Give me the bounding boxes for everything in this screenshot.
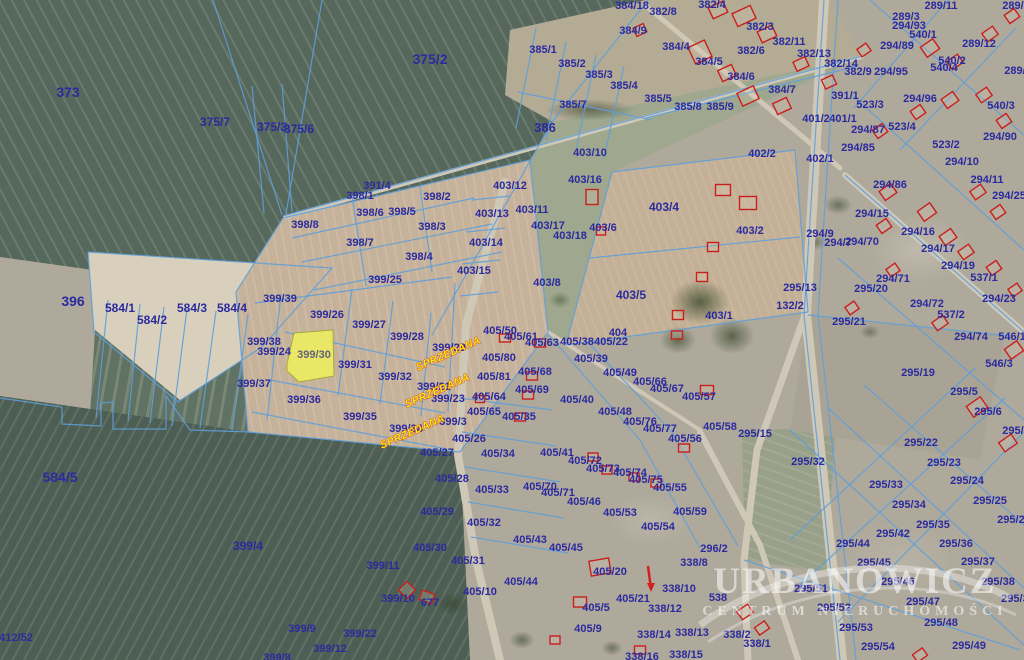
parcel-label: 405/35 — [502, 411, 536, 423]
parcel-label: 405/40 — [560, 394, 594, 406]
parcel-label: 399/27 — [352, 319, 386, 331]
parcel-label: 399/28 — [390, 331, 424, 343]
building-outline — [716, 185, 731, 196]
parcel-label: 294/96 — [903, 93, 937, 105]
parcel-label: 294/85 — [841, 142, 875, 154]
parcel-label: 405/22 — [594, 336, 628, 348]
parcel-label: 295/46 — [881, 576, 915, 588]
parcel-label: 294/25 — [992, 190, 1024, 202]
parcel-label: 403/1 — [705, 310, 733, 322]
parcel-label: 537/1 — [970, 272, 998, 284]
parcel-label: 399/24 — [257, 346, 292, 358]
parcel-label: 405/29 — [420, 506, 454, 518]
parcel-label: 375/2 — [412, 51, 447, 67]
parcel-label: 405/58 — [703, 421, 737, 433]
parcel-label: 294/87 — [851, 124, 885, 136]
parcel-boundary — [590, 237, 800, 258]
building-outline — [920, 39, 939, 57]
building-outline — [917, 203, 936, 221]
building-outline — [910, 104, 926, 119]
parcel-boundary — [516, 28, 536, 128]
parcel-label: 338/15 — [669, 649, 703, 660]
parcel-label: 384/5 — [695, 56, 723, 68]
building-outline — [1004, 341, 1023, 359]
parcel-label: 399/9 — [288, 623, 316, 635]
building-outline — [990, 204, 1006, 219]
parcel-label: 391/1 — [831, 90, 859, 102]
parcel-boundary — [380, 301, 393, 404]
parcel-label: 399/35 — [343, 411, 377, 423]
parcel-label: 384/9 — [619, 25, 647, 37]
parcel-overlay: 373375/7375/3375/6375/2396584/1584/2584/… — [0, 0, 1024, 660]
parcel-label: 405/53 — [603, 507, 637, 519]
parcel-label: 382/3 — [746, 21, 774, 33]
building-outline — [755, 621, 770, 635]
parcel-boundary — [744, 560, 1020, 650]
parcel-label: 295/49 — [952, 640, 986, 652]
parcel-label: 294/15 — [855, 208, 889, 220]
parcel-label: 132/2 — [776, 300, 804, 312]
parcel-label: 398/7 — [346, 237, 374, 249]
parcel-label: 403/12 — [493, 180, 527, 192]
parcel-label: 405/26 — [452, 433, 486, 445]
parcel-label: 399/11 — [366, 560, 399, 572]
parcel-label: 405/46 — [567, 496, 601, 508]
parcel-boundary — [468, 502, 564, 518]
parcel-label: 295/39 — [1001, 593, 1024, 605]
parcel-label: 373 — [56, 84, 80, 100]
parcel-label: 294/90 — [983, 131, 1017, 143]
parcel-label: 405/55 — [653, 482, 687, 494]
parcel-label: 584/1 — [105, 301, 135, 315]
parcel-label: 523/2 — [932, 139, 960, 151]
parcel-label: 398/3 — [418, 221, 446, 233]
parcel-label: 401/2 — [802, 113, 830, 125]
parcel-boundary — [0, 396, 250, 432]
building-outline — [876, 218, 892, 233]
parcel-label: 385/5 — [644, 93, 672, 105]
parcel-label: 405/45 — [549, 542, 583, 554]
parcel-label: 295/20 — [854, 283, 888, 295]
parcel-boundary — [338, 289, 352, 396]
parcel-label: 338/16 — [625, 651, 659, 660]
parcel-label: 405/64 — [472, 391, 507, 403]
parcel-label: 405/10 — [463, 586, 497, 598]
parcel-label: 584/4 — [217, 301, 247, 315]
parcel-label: 338/12 — [648, 603, 682, 615]
parcel-boundary — [530, 160, 548, 332]
parcel-label: 403/2 — [736, 225, 764, 237]
parcel-boundary — [88, 252, 332, 402]
parcel-label: 405/63 — [525, 337, 559, 349]
building-outline — [679, 444, 690, 452]
parcel-label: 398/8 — [291, 219, 319, 231]
building-outline — [672, 331, 683, 339]
parcel-boundary — [286, 0, 322, 214]
parcel-label: 295/13 — [783, 282, 817, 294]
parcel-label: 295/44 — [836, 538, 871, 550]
parcel-label: 405/38 — [560, 336, 594, 348]
parcel-label: 385/1 — [529, 44, 557, 56]
parcel-label: 405/43 — [513, 534, 547, 546]
road — [744, 315, 805, 660]
parcel-label: 399/8 — [263, 652, 291, 660]
parcel-label: 398/5 — [388, 206, 416, 218]
parcel-label: 398/1 — [346, 190, 374, 202]
parcel-label: 338/13 — [675, 627, 709, 639]
parcel-label: 399/37 — [237, 378, 271, 390]
parcel-boundary — [96, 300, 108, 418]
parcel-label: 295/33 — [869, 479, 903, 491]
parcel-label: 399/4 — [233, 539, 263, 553]
building-outline — [697, 273, 708, 282]
parcel-label: 584/5 — [42, 469, 77, 485]
parcel-label: 523/3 — [856, 99, 884, 111]
parcel-label: 382/9 — [844, 66, 872, 78]
parcel-label: 295/51 — [794, 583, 828, 595]
parcel-boundary — [460, 292, 498, 296]
parcel-label: 295/25 — [973, 495, 1007, 507]
parcel-label: 405/32 — [467, 517, 501, 529]
parcel-label: 338/1 — [743, 638, 771, 650]
parcel-label: 295/53 — [839, 622, 873, 634]
parcel-label: 295/48 — [924, 617, 958, 629]
parcel-label: 405/56 — [668, 433, 702, 445]
parcel-label: 402/1 — [806, 153, 834, 165]
parcel-label: 295/32 — [791, 456, 825, 468]
building-outline — [970, 184, 986, 200]
parcel-boundary — [236, 218, 283, 292]
parcel-label: 375/3 — [257, 120, 287, 134]
parcel-label: 403/10 — [573, 147, 607, 159]
road — [645, 5, 840, 168]
parcel-label: 584/3 — [177, 301, 207, 315]
parcel-label: 405/5 — [582, 602, 610, 614]
parcel-label: 294/95 — [874, 66, 908, 78]
parcel-label: 403/14 — [469, 237, 504, 249]
parcel-label: 382/6 — [737, 45, 765, 57]
parcel-label: 289/12 — [962, 38, 996, 50]
parcel-label: 398/6 — [356, 207, 384, 219]
red-arrow-head-icon — [647, 583, 655, 592]
parcel-label: 295/36 — [939, 538, 973, 550]
parcel-label: 399/30 — [297, 349, 331, 361]
parcel-label: 295/26 — [997, 514, 1024, 526]
parcel-label: 405/30 — [413, 542, 447, 554]
parcel-label: 405/54 — [641, 521, 676, 533]
parcel-boundary — [232, 314, 248, 431]
building-outline — [857, 43, 871, 57]
cadastral-map[interactable]: 373375/7375/3375/6375/2396584/1584/2584/… — [0, 0, 1024, 660]
parcel-label: 412/52 — [0, 632, 33, 644]
parcel-label: 385/9 — [706, 101, 734, 113]
building-outline — [740, 197, 757, 210]
building-outline — [913, 648, 928, 660]
parcel-label: 289/11 — [924, 0, 957, 12]
building-outline — [941, 91, 959, 108]
parcel-label: 295/21 — [832, 316, 866, 328]
parcel-label: 405/68 — [518, 366, 552, 378]
parcel-label: 546/1 — [998, 331, 1024, 343]
parcel-label: 405/39 — [574, 353, 608, 365]
parcel-label: 405/81 — [477, 371, 511, 383]
parcel-label: 677 — [421, 597, 439, 609]
parcel-label: 385/2 — [558, 58, 586, 70]
parcel-label: 385/4 — [610, 80, 638, 92]
parcel-label: 289/9 — [1002, 0, 1024, 12]
parcel-label: 294/17 — [921, 243, 955, 255]
parcel-label: 338/14 — [637, 629, 672, 641]
parcel-label: 405/20 — [593, 566, 627, 578]
parcel-label: 385/3 — [585, 69, 613, 81]
parcel-label: 403/16 — [568, 174, 602, 186]
parcel-label: 403/15 — [457, 265, 491, 277]
parcel-label: 294/16 — [901, 226, 935, 238]
parcel-label: 405/59 — [673, 506, 707, 518]
parcel-label: 399/10 — [381, 593, 415, 605]
parcel-label: 384/4 — [662, 41, 690, 53]
parcel-label: 405/57 — [682, 391, 716, 403]
parcel-label: 382/11 — [772, 36, 805, 48]
parcel-label: 294/11 — [970, 174, 1003, 186]
building-outline — [708, 243, 719, 252]
parcel-label: 405/80 — [482, 352, 516, 364]
building-outline — [737, 604, 753, 620]
parcel-label: 405/28 — [435, 473, 469, 485]
parcel-label: 382/8 — [649, 6, 677, 18]
parcel-label: 385/7 — [559, 99, 587, 111]
parcel-label: 295/42 — [876, 528, 910, 540]
parcel-label: 338/10 — [662, 583, 696, 595]
parcel-label: 405/9 — [574, 623, 602, 635]
parcel-label: 294/89 — [880, 40, 914, 52]
parcel-boundary — [465, 467, 560, 482]
parcel-label: 405/27 — [420, 447, 454, 459]
parcel-label: 382/4 — [698, 0, 726, 11]
parcel-label: 399/31 — [338, 359, 372, 371]
parcel-label: 403/11 — [515, 204, 548, 216]
parcel-label: 295/52 — [817, 602, 851, 614]
building-outline — [586, 190, 598, 205]
parcel-label: 294/86 — [873, 179, 907, 191]
parcel-label: 399/36 — [287, 394, 321, 406]
parcel-label: 540/3 — [987, 100, 1015, 112]
parcel-label: 403/5 — [616, 288, 646, 302]
parcel-label: 405/34 — [481, 448, 516, 460]
parcel-label: 546/3 — [985, 358, 1013, 370]
parcel-label: 405/44 — [504, 576, 539, 588]
parcel-label: 399/25 — [368, 274, 402, 286]
parcel-label: 403/6 — [589, 222, 617, 234]
parcel-label: 295/22 — [904, 437, 938, 449]
parcel-label: 294/70 — [845, 236, 879, 248]
parcel-label: 405/33 — [475, 484, 509, 496]
parcel-label: 294/19 — [941, 260, 975, 272]
parcel-label: 294/74 — [954, 331, 989, 343]
parcel-label: 398/4 — [405, 251, 433, 263]
parcel-label: 295/38 — [981, 576, 1015, 588]
building-outline — [958, 244, 974, 260]
parcel-label: 405/21 — [616, 593, 650, 605]
parcel-label: 403/18 — [553, 230, 587, 242]
parcel-label: 295/47 — [906, 596, 940, 608]
building-outline — [673, 311, 684, 320]
parcel-label: 399/22 — [343, 628, 377, 640]
parcel-label: 405/69 — [515, 384, 549, 396]
parcel-boundary — [252, 86, 264, 213]
parcel-boundary — [200, 311, 216, 428]
building-outline — [845, 301, 859, 315]
parcel-label: 584/2 — [137, 313, 167, 327]
parcel-label: 384/7 — [768, 84, 796, 96]
parcel-label: 295/6 — [974, 406, 1002, 418]
parcel-label: 385/8 — [674, 101, 702, 113]
parcel-label: 538 — [709, 592, 727, 604]
parcel-label: 375/7 — [200, 115, 230, 129]
parcel-label: 399/12 — [313, 643, 347, 655]
parcel-label: 537/2 — [937, 309, 965, 321]
parcel-label: 295/34 — [892, 499, 927, 511]
parcel-label: 403/4 — [649, 200, 679, 214]
parcel-label: 338/8 — [680, 557, 708, 569]
parcel-label: 295/37 — [961, 556, 995, 568]
parcel-label: 295/7 — [1002, 425, 1024, 437]
parcel-label: 289/1 — [1004, 65, 1024, 77]
parcel-label: 386 — [534, 120, 556, 135]
parcel-label: 399/39 — [263, 293, 297, 305]
parcel-label: 540/4 — [930, 62, 958, 74]
parcel-label: 384/18 — [615, 0, 649, 12]
parcel-label: 399/32 — [378, 371, 412, 383]
parcel-label: 405/67 — [650, 383, 684, 395]
parcel-label: 295/24 — [950, 475, 985, 487]
parcel-label: 295/45 — [857, 557, 891, 569]
parcel-label: 405/49 — [603, 367, 637, 379]
parcel-label: 396 — [61, 293, 85, 309]
parcel-label: 295/23 — [927, 457, 961, 469]
parcel-label: 523/4 — [888, 121, 916, 133]
building-outline — [550, 636, 560, 644]
parcel-label: 403/13 — [475, 208, 509, 220]
parcel-label: 294/10 — [945, 156, 979, 168]
parcel-label: 405/31 — [451, 555, 485, 567]
parcel-label: 405/65 — [467, 406, 501, 418]
parcel-label: 375/6 — [284, 122, 314, 136]
parcel-label: 296/2 — [700, 543, 728, 555]
building-outline — [996, 113, 1012, 128]
parcel-boundary — [213, 0, 282, 215]
sold-label: SPRZEDANA — [414, 334, 483, 373]
parcel-label: 295/35 — [916, 519, 950, 531]
parcel-label: 295/19 — [901, 367, 935, 379]
parcel-label: 295/15 — [738, 428, 772, 440]
parcel-label: 294/23 — [982, 293, 1016, 305]
parcel-label: 398/2 — [423, 191, 451, 203]
parcel-label: 384/6 — [727, 71, 755, 83]
parcel-label: 403/8 — [533, 277, 561, 289]
parcel-label: 402/2 — [748, 148, 776, 160]
parcel-label: 295/5 — [950, 386, 978, 398]
parcel-boundary — [282, 84, 292, 212]
parcel-label: 399/26 — [310, 309, 344, 321]
parcel-label: 295/54 — [861, 641, 896, 653]
